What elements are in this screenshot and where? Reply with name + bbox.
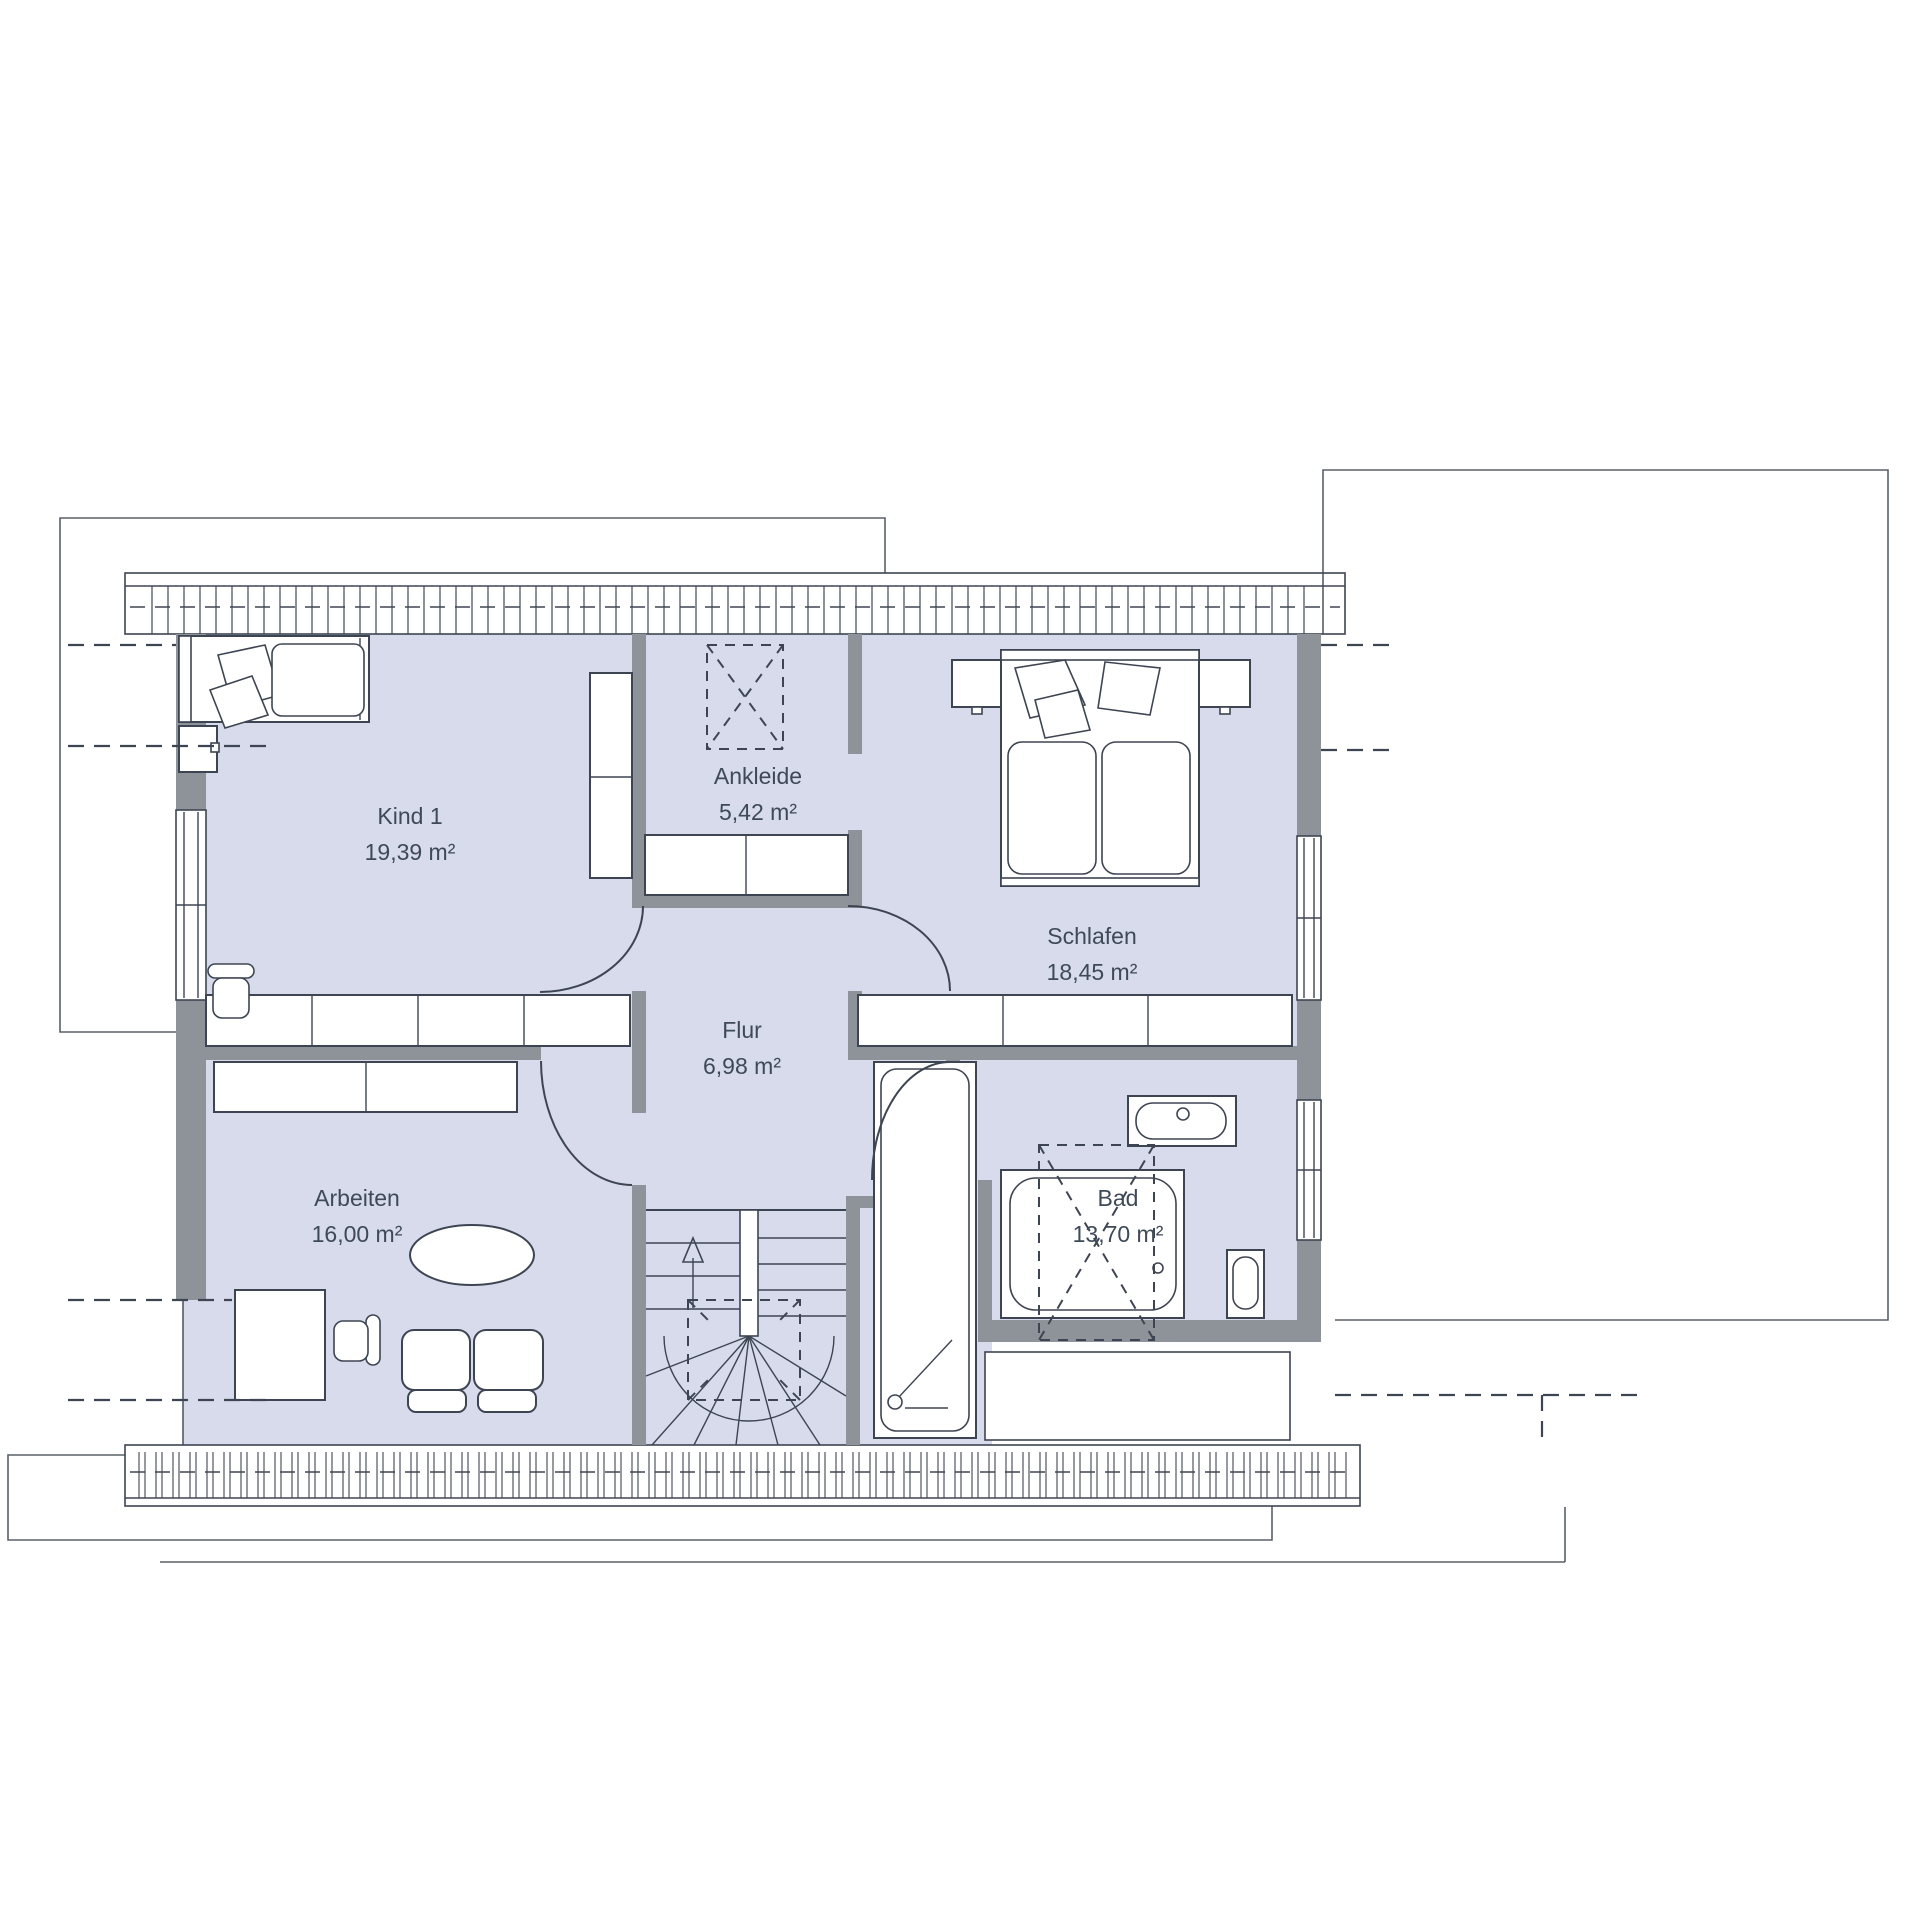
window-right-bad	[1297, 1100, 1321, 1240]
room-label-ankleide: Ankleide	[714, 763, 802, 789]
balcony-railing-band-bottom	[125, 1445, 1360, 1506]
shower-icon	[874, 1062, 976, 1438]
window-right-schlafen	[1297, 836, 1321, 1000]
floor-plan-canvas: Kind 1 19,39 m² Ankleide 5,42 m² Schlafe…	[0, 0, 1920, 1920]
desk-chair-kind1-icon	[208, 964, 254, 1018]
washbasin-icon	[1128, 1096, 1236, 1146]
sideboard-kind1-icon	[206, 995, 630, 1046]
room-area-schlafen: 18,45 m²	[1047, 959, 1138, 985]
wall-kind1-ankleide	[632, 634, 646, 906]
room-label-schlafen: Schlafen	[1047, 923, 1137, 949]
sideboard-arbeiten-icon	[214, 1062, 517, 1112]
wall-schlafen-south	[848, 1046, 1321, 1060]
window-left	[176, 810, 206, 1000]
sideboard-schlafen-icon	[858, 995, 1292, 1046]
floor-plan-page: Kind 1 19,39 m² Ankleide 5,42 m² Schlafe…	[0, 0, 1920, 1920]
room-area-bad: 13,70 m²	[1073, 1221, 1164, 1247]
desk-chair-arbeiten-icon	[334, 1315, 380, 1365]
toilet-icon	[1227, 1250, 1264, 1318]
room-area-kind1: 19,39 m²	[365, 839, 456, 865]
knee-wall-storage-icon	[985, 1352, 1290, 1440]
room-area-ankleide: 5,42 m²	[719, 799, 797, 825]
room-label-arbeiten: Arbeiten	[314, 1185, 400, 1211]
wall-exterior-right-upper	[1297, 634, 1321, 836]
room-label-bad: Bad	[1098, 1185, 1139, 1211]
wall-ankleide-schlafen-upper	[848, 634, 862, 754]
wall-stair-east	[846, 1208, 860, 1445]
wall-bad-west	[978, 1180, 992, 1320]
oval-table-icon	[410, 1225, 534, 1285]
room-area-arbeiten: 16,00 m²	[312, 1221, 403, 1247]
double-bed-icon	[1001, 650, 1199, 886]
room-label-flur: Flur	[722, 1017, 762, 1043]
desk-icon	[235, 1290, 325, 1400]
wall-ankleide-south	[632, 895, 858, 908]
nightstand-kind1-icon	[179, 726, 219, 772]
wall-kind1-flur	[632, 991, 646, 1113]
wall-exterior-left-lower	[176, 1000, 206, 1300]
wall-ankleide-schlafen-lower	[848, 830, 862, 908]
wall-stair-west	[632, 1185, 646, 1445]
wall-stair-stub	[846, 1196, 874, 1208]
wall-kind1-arbeiten	[176, 1046, 541, 1060]
wardrobe-ankleide-icon	[645, 835, 848, 895]
wardrobe-kind1-icon	[590, 673, 632, 878]
nightstand-right-icon	[1199, 660, 1250, 714]
room-label-kind1: Kind 1	[377, 803, 442, 829]
roof-overhang-band-top	[125, 573, 1345, 634]
room-area-flur: 6,98 m²	[703, 1053, 781, 1079]
nightstand-left-icon	[952, 660, 1001, 714]
single-bed-icon	[179, 636, 369, 728]
